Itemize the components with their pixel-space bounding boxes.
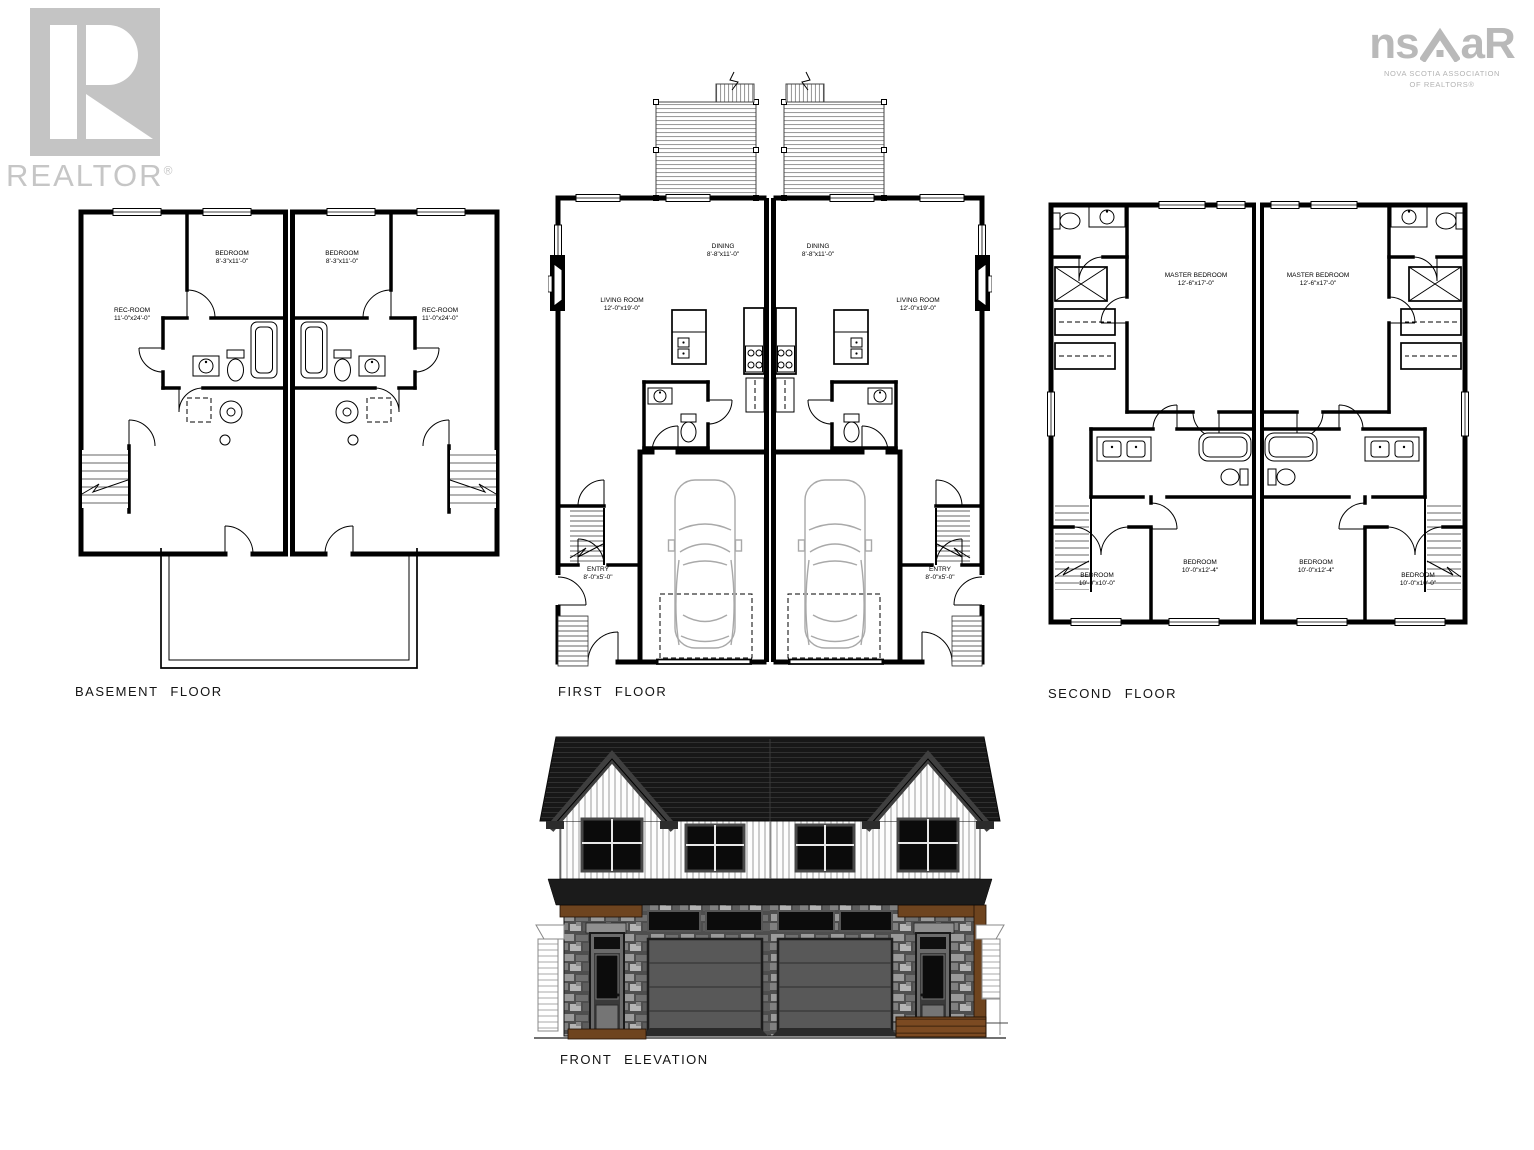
wood-sill-left [568,1029,646,1039]
room-label-entry-left: ENTRY8'-0"x5'-0" [583,566,612,581]
room-label-bedroom-left: BEDROOM8'-3"x11'-0" [215,250,249,265]
garage [640,426,764,664]
second-floor-plan [1043,197,1473,630]
plan-sheet: REALTOR® ns aR NOVA SCOTIA ASSOCIATION O… [0,0,1534,1150]
wood-deck-right [896,1017,986,1037]
porch-steps [558,616,588,666]
second-floor-title: SECOND FLOOR [1048,686,1177,701]
fireplace [548,255,565,311]
nsar-ar: aR [1461,26,1515,61]
window [898,819,958,871]
nsar-logo-subtext: NOVA SCOTIA ASSOCIATION OF REALTORS® [1362,69,1522,90]
room-label-bedroom-outer-left: BEDROOM10'-0"x10'-0" [1079,572,1115,587]
registered-mark: ® [164,164,175,178]
room-label-entry-right: ENTRY8'-0"x5'-0" [925,566,954,581]
fascia-band [548,879,992,905]
wood-band-right [898,905,975,917]
nsar-logo-wordmark: ns aR [1362,26,1522,62]
nsar-ns: ns [1369,26,1418,61]
first-floor-unit [548,72,769,666]
room-label-bedroom-inner-left: BEDROOM10'-0"x12'-4" [1182,559,1218,574]
first-floor-title: FIRST FLOOR [558,684,667,699]
realtor-logo-icon [8,8,168,158]
kitchen-island [672,310,706,364]
powder-room [644,382,732,448]
window [582,819,642,871]
second-floor-unit [1048,202,1257,626]
railing-left [536,925,564,1031]
front-elevation-title: FRONT ELEVATION [560,1052,709,1067]
car [669,480,742,648]
window-mid-right [796,825,854,871]
deck [656,102,756,198]
front-elevation-drawing [530,733,1010,1053]
nsar-logo: ns aR NOVA SCOTIA ASSOCIATION OF REALTOR… [1362,26,1522,90]
room-label-rec-room-right: REC-ROOM11'-0"x24'-0" [422,307,458,322]
room-label-living-room-right: LIVING ROOM12'-0"x19'-0" [896,297,939,312]
garage-door-right [772,939,898,1036]
realtor-logo-text: REALTOR® [6,158,174,194]
range-counter [744,308,764,412]
basement-unit [81,209,289,669]
basement-floor-plan [75,198,503,673]
basement-floor-title: BASEMENT FLOOR [75,684,223,699]
ensuite-bath [1051,205,1127,297]
room-label-dining-right: DINING8'-8"x11'-0" [802,243,834,258]
house-roof-icon [1420,26,1460,62]
closets [1055,309,1115,369]
room-label-dining-left: DINING8'-8"x11'-0" [707,243,739,258]
room-label-rec-room-left: REC-ROOM11'-0"x24'-0" [114,307,150,322]
room-label-bedroom-right: BEDROOM8'-3"x11'-0" [325,250,359,265]
entry-door-left [586,923,626,1035]
stairs [558,480,604,565]
room-label-bedroom-inner-right: BEDROOM10'-0"x12'-4" [1298,559,1334,574]
room-label-master-bedroom-right: MASTER BEDROOM12'-6"x17'-0" [1287,272,1349,287]
wood-band-left [560,905,642,917]
room-label-living-room-left: LIVING ROOM12'-0"x19'-0" [600,297,643,312]
window-mid-left [686,825,744,871]
first-floor-plan [548,60,992,676]
garage-door-left [642,939,768,1036]
room-label-master-bedroom-left: MASTER BEDROOM12'-6"x17'-0" [1165,272,1227,287]
room-label-bedroom-outer-right: BEDROOM10'-0"x10'-0" [1400,572,1436,587]
main-bath [1091,405,1252,497]
